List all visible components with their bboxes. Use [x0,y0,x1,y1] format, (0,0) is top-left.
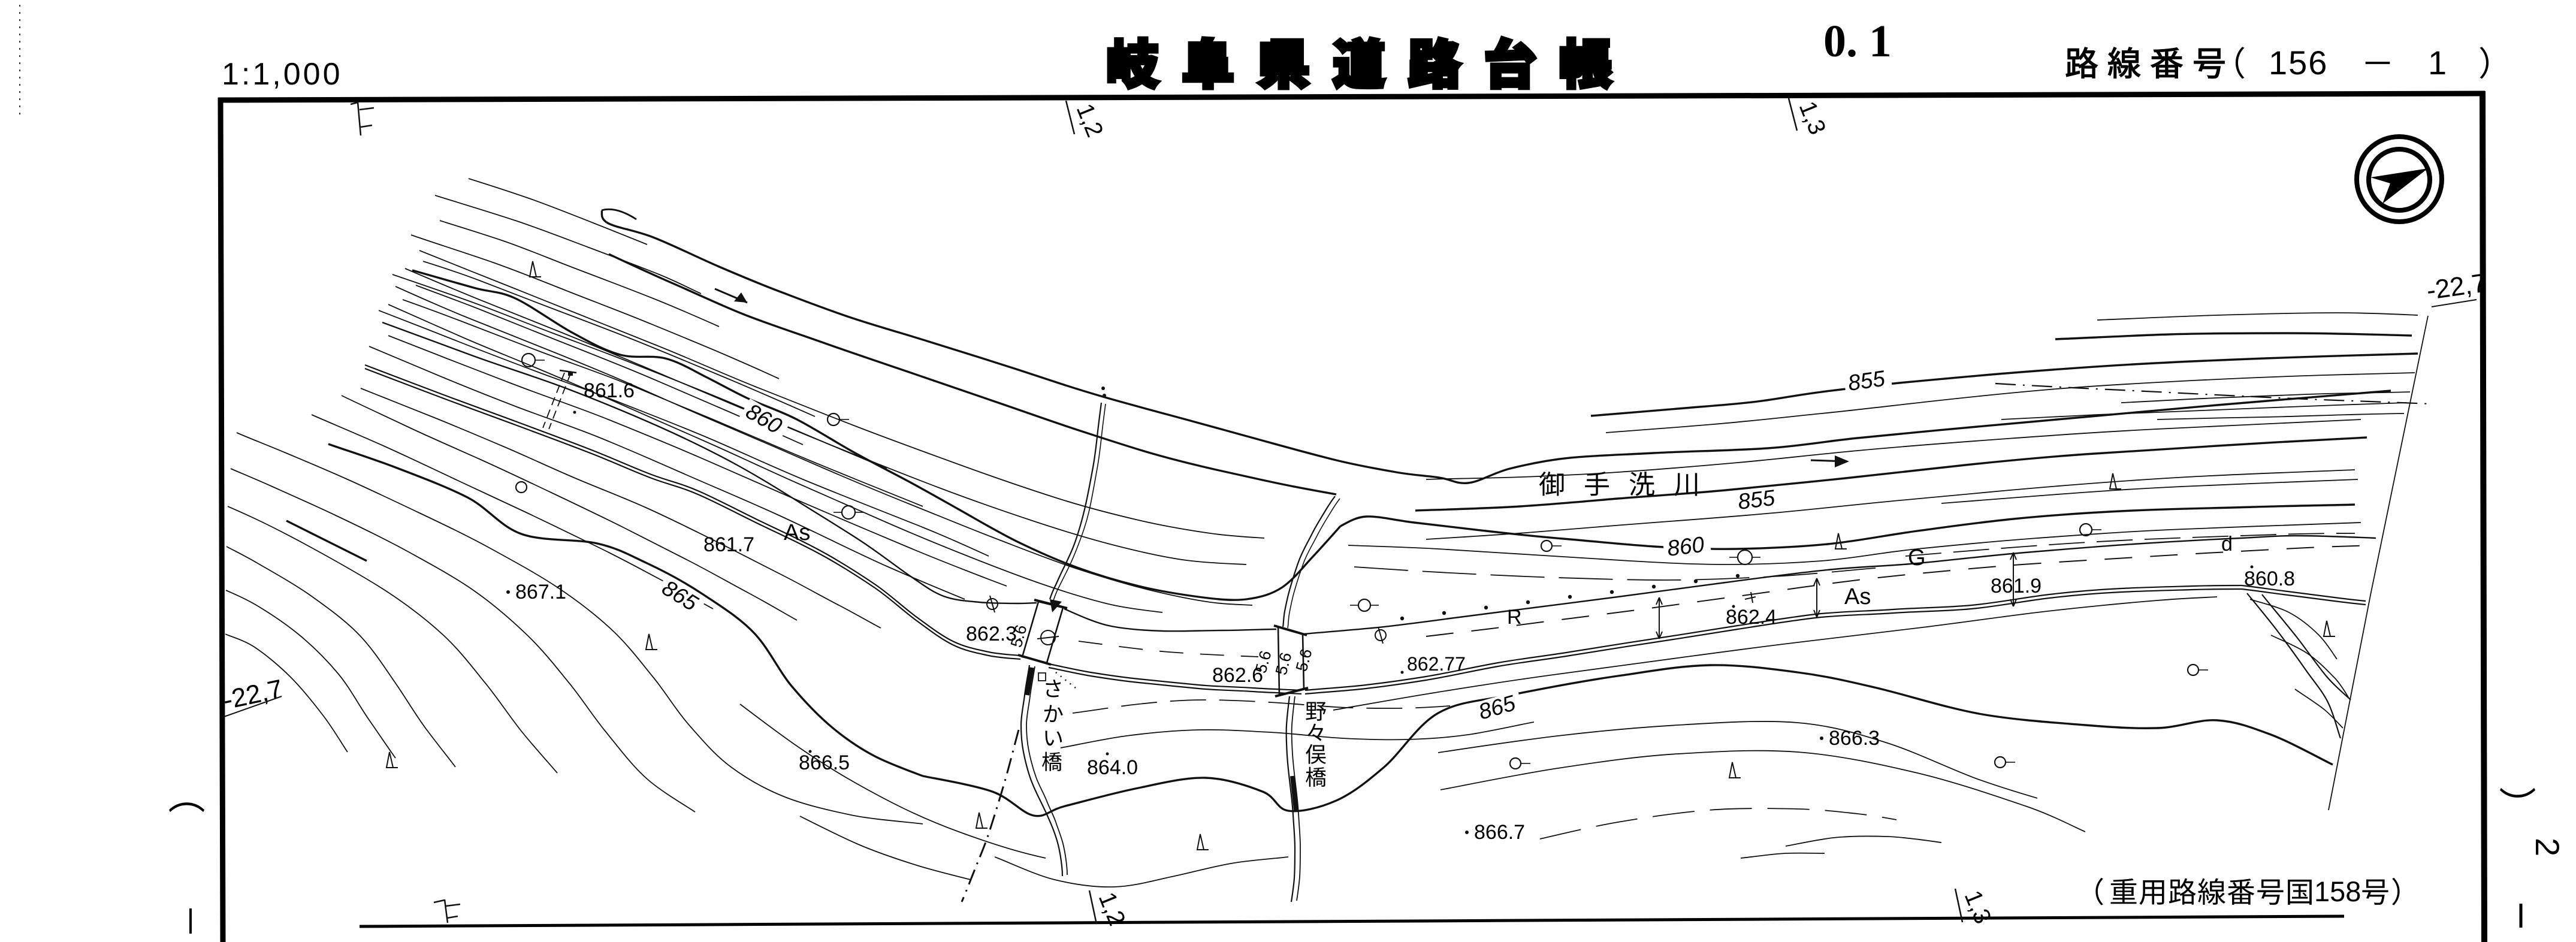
svg-text:861.9: 861.9 [1991,575,2042,597]
svg-text:As: As [1844,584,1871,609]
svg-text:862.4: 862.4 [1726,606,1777,629]
svg-text:855: 855 [1737,485,1777,514]
svg-text:As: As [784,520,810,545]
svg-text:861.6: 861.6 [584,379,635,402]
svg-text:862.77: 862.77 [1407,653,1466,675]
svg-text:1:1,000: 1:1,000 [222,57,343,92]
svg-text:864.0: 864.0 [1087,756,1138,779]
svg-text:866.5: 866.5 [799,751,850,774]
svg-text:860: 860 [1666,532,1706,561]
svg-text:855: 855 [1846,366,1886,395]
svg-text:R: R [1507,606,1522,629]
svg-text:867.1: 867.1 [515,581,566,603]
svg-text:158: 158 [2314,875,2361,907]
svg-text:156: 156 [2269,44,2328,81]
svg-text:0. 1: 0. 1 [1823,16,1892,67]
svg-text:860.8: 860.8 [2244,567,2295,590]
svg-text:1: 1 [2428,44,2447,81]
svg-text:866.7: 866.7 [1474,821,1525,844]
svg-text:861.7: 861.7 [703,533,754,556]
svg-text:2: 2 [2529,838,2566,856]
svg-text:866.3: 866.3 [1829,727,1880,750]
